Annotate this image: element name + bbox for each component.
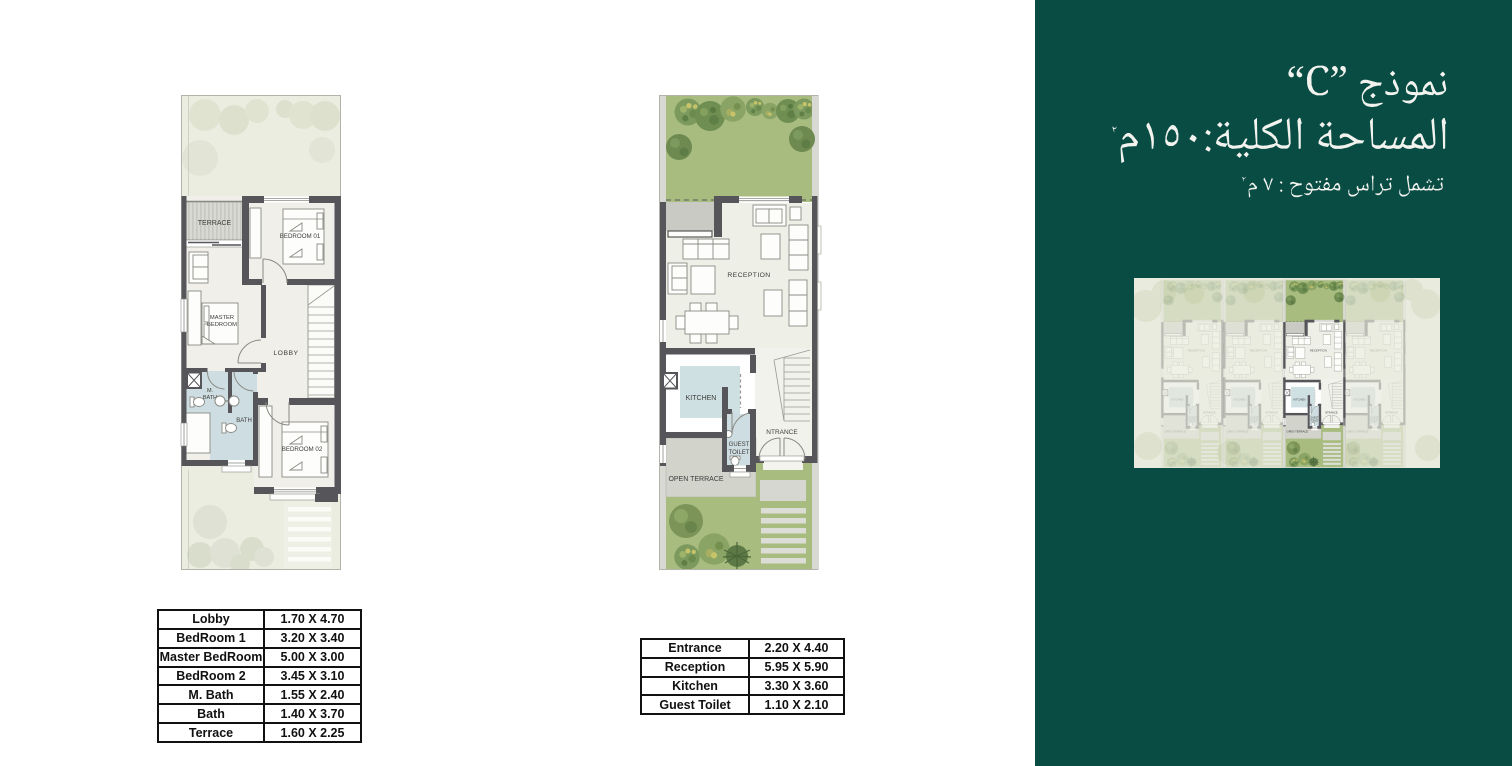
svg-text:MASTER: MASTER: [210, 315, 234, 321]
svg-text:BATH: BATH: [236, 418, 252, 424]
svg-text:M.: M.: [207, 388, 214, 394]
svg-text:OPEN TERRACE: OPEN TERRACE: [668, 476, 723, 483]
svg-text:BEDROOM 01: BEDROOM 01: [280, 233, 321, 240]
svg-text:TOILET: TOILET: [729, 450, 750, 456]
svg-text:BEDROOM 02: BEDROOM 02: [282, 446, 323, 453]
svg-text:LOBBY: LOBBY: [273, 350, 298, 357]
svg-text:RECEPTION: RECEPTION: [727, 272, 770, 279]
svg-text:GUEST: GUEST: [729, 442, 750, 448]
svg-text:NTRANCE: NTRANCE: [766, 429, 798, 436]
svg-text:BEDROOM: BEDROOM: [207, 322, 237, 328]
svg-text:KITCHEN: KITCHEN: [686, 395, 717, 402]
svg-text:TERRACE: TERRACE: [198, 220, 232, 227]
